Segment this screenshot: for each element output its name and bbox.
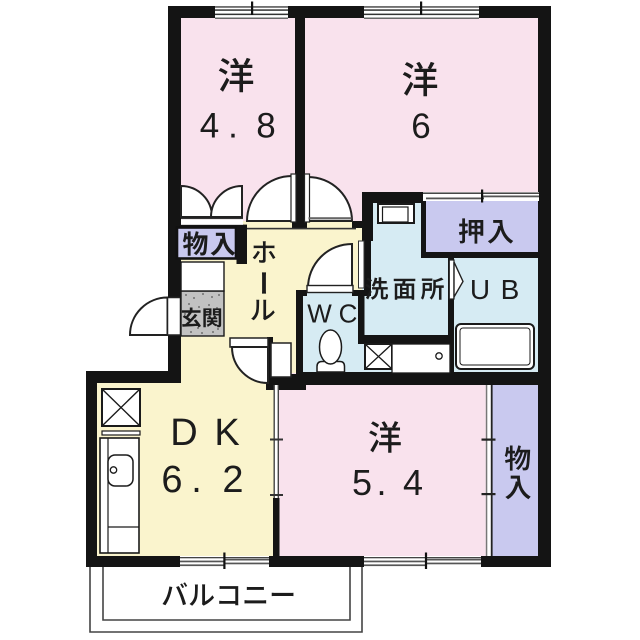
- svg-text:4: 4: [200, 107, 219, 146]
- svg-text:D: D: [170, 412, 197, 454]
- svg-text:U: U: [470, 274, 490, 305]
- svg-text:C: C: [339, 299, 358, 329]
- svg-text:6: 6: [161, 459, 182, 501]
- svg-text:4: 4: [403, 462, 423, 503]
- svg-text:K: K: [214, 412, 239, 454]
- svg-text:.: .: [376, 462, 386, 503]
- svg-text:8: 8: [256, 107, 275, 146]
- svg-text:6: 6: [411, 107, 430, 146]
- svg-text:.: .: [191, 459, 202, 501]
- svg-text:.: .: [228, 107, 238, 146]
- svg-text:5: 5: [352, 462, 372, 503]
- svg-text:B: B: [501, 274, 520, 305]
- svg-text:2: 2: [222, 459, 243, 501]
- svg-text:W: W: [307, 299, 332, 329]
